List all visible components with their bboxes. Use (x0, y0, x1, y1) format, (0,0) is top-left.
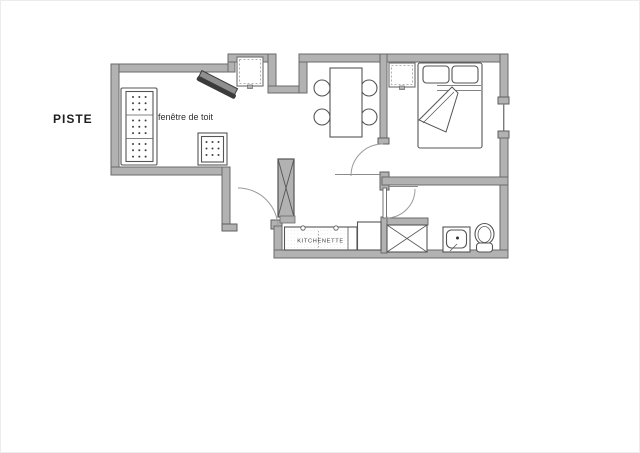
pillow (423, 66, 449, 83)
piste-label: PISTE (53, 112, 93, 126)
dining-chair (361, 109, 377, 125)
roof-window-recess (237, 57, 263, 89)
bedroom-window (503, 104, 504, 131)
ottoman (198, 133, 227, 165)
wall-middle (382, 177, 508, 185)
shower (387, 225, 427, 252)
living-area: fenêtre de toit (121, 70, 239, 165)
kitchenette-label: KITCHENETTE (297, 239, 344, 245)
roof-window-label: fenêtre de toit (158, 112, 214, 122)
sofa (121, 88, 157, 165)
wall-divider-cap (378, 138, 389, 144)
counter-end-unit (358, 222, 382, 250)
dining-area (314, 68, 377, 137)
window-cap-bottom (498, 131, 509, 138)
washbasin (443, 227, 470, 252)
bathroom-door-swing (386, 189, 415, 218)
wall-living-top (111, 64, 235, 72)
dining-chair (314, 109, 330, 125)
toilet-base (477, 243, 493, 252)
wall-living-bottom (111, 167, 230, 175)
roof-window-bedroom (389, 63, 415, 90)
counter-knob (334, 226, 338, 230)
bathroom (387, 224, 494, 253)
wall-right-lower (500, 138, 508, 258)
kitchenette: KITCHENETTE (285, 222, 382, 250)
wall-divider-bedroom (380, 54, 387, 140)
wall-top-main (299, 54, 508, 62)
wall-left (111, 64, 119, 175)
wall-entry-side (222, 167, 230, 224)
wall-shower-side (381, 217, 387, 253)
dining-table (330, 68, 362, 137)
wall-shower-top (387, 218, 428, 225)
pillow (452, 66, 478, 83)
floor-plan-canvas: fenêtre de toit (0, 0, 640, 453)
toilet (475, 224, 494, 253)
bedroom-door-swing (351, 144, 383, 176)
dining-chair (361, 80, 377, 96)
counter-knob (301, 226, 305, 230)
floor-plan-drawing: fenêtre de toit (0, 0, 640, 453)
window-cap-top (498, 97, 509, 104)
technical-column (278, 159, 295, 223)
television (196, 70, 239, 99)
dining-chair (314, 80, 330, 96)
wall-entry-jamb-left (222, 224, 237, 231)
wall-right-upper (500, 54, 508, 98)
bathroom-door-leaf (383, 188, 387, 218)
bedroom (418, 63, 482, 148)
